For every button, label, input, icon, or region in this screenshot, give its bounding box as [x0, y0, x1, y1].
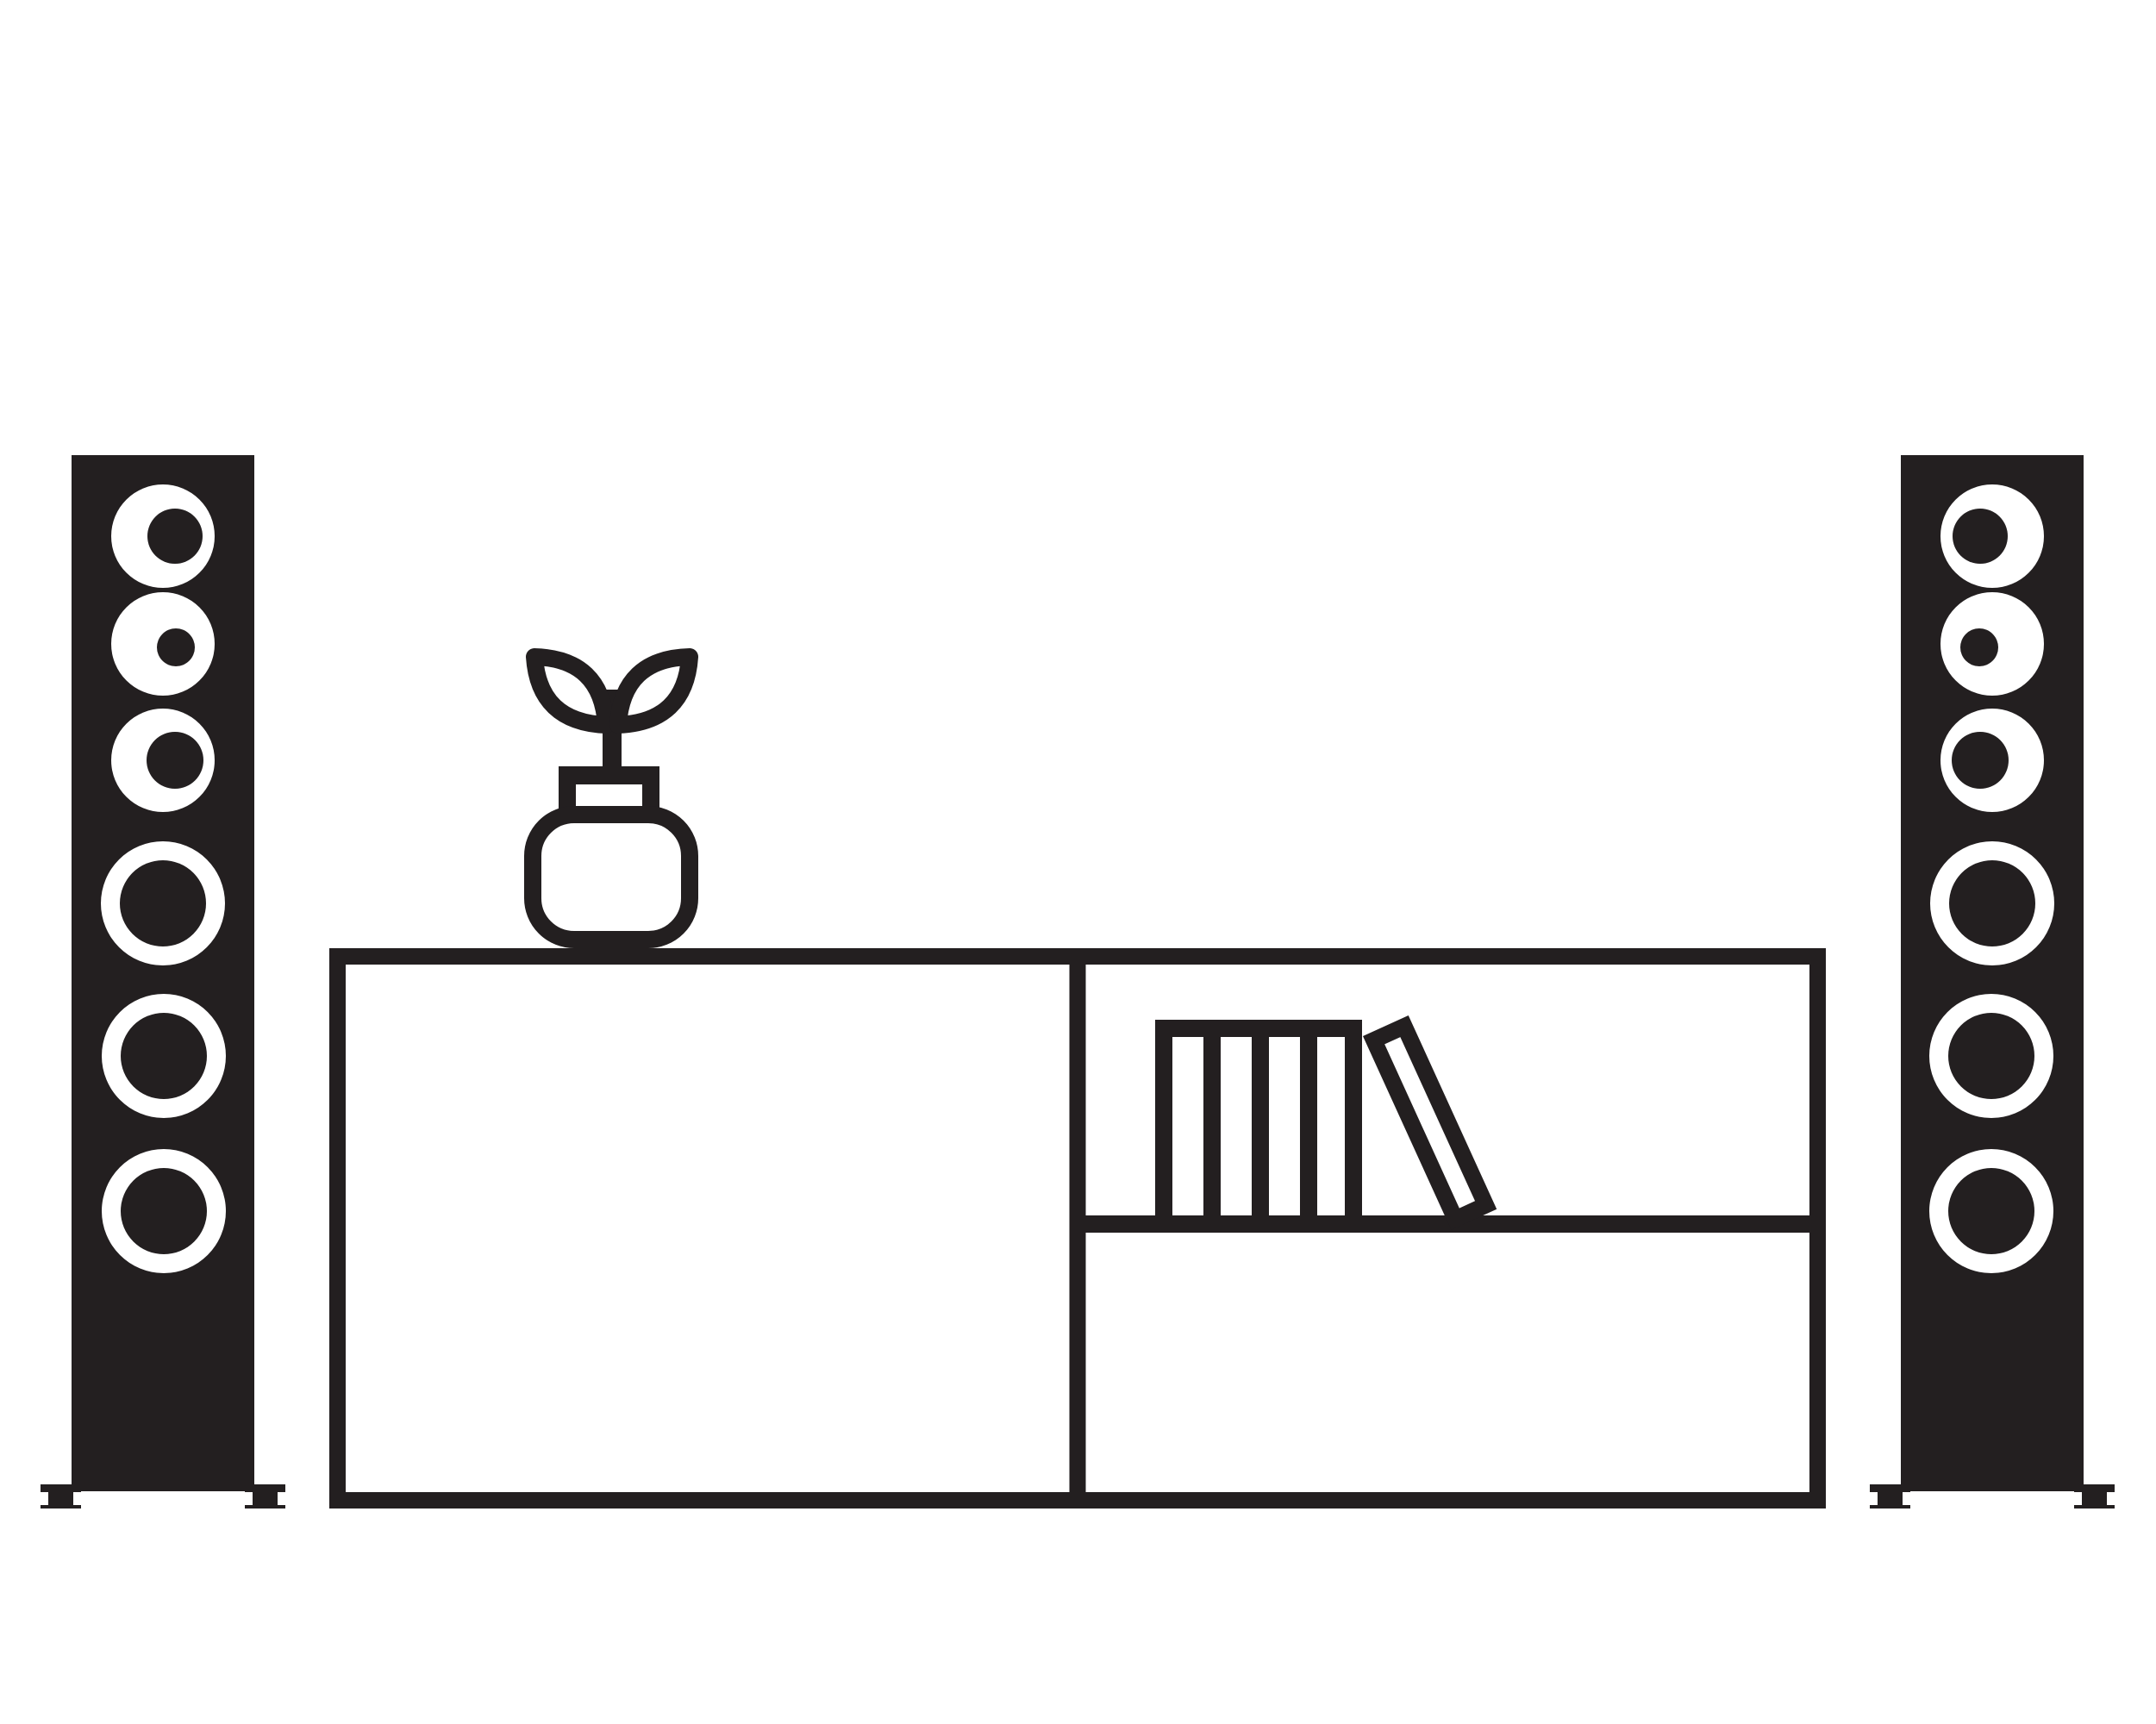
- leaf-icon: [618, 657, 690, 725]
- illustration-canvas: Living room media setup — minimal black …: [0, 0, 2156, 1724]
- left-speaker: [41, 455, 285, 1508]
- plant-vase: [533, 657, 690, 940]
- illustration-stage: Living room media setup — minimal black …: [0, 0, 2156, 1724]
- book-spine: [1300, 1020, 1317, 1224]
- book-spine: [1345, 1020, 1362, 1224]
- vase-neck-wall: [559, 780, 576, 810]
- leaf-icon: [534, 657, 606, 725]
- right-speaker: [1870, 455, 2115, 1508]
- tv-stand: [338, 957, 1818, 1501]
- book-spine: [1155, 1020, 1172, 1224]
- vase-neck-wall: [642, 780, 659, 810]
- vase-body: [533, 815, 690, 940]
- book-spine: [1203, 1020, 1221, 1224]
- book-spine: [1252, 1020, 1269, 1224]
